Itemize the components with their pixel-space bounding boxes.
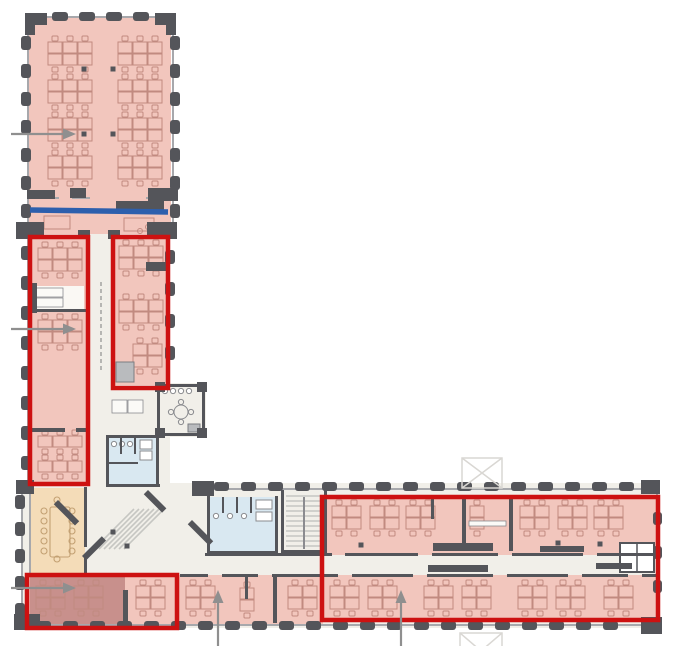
pilaster bbox=[170, 36, 180, 50]
counter-seat bbox=[170, 388, 175, 393]
pilaster bbox=[576, 621, 591, 630]
pilaster bbox=[403, 482, 418, 491]
pilaster bbox=[279, 621, 294, 630]
pilaster bbox=[565, 482, 580, 491]
bath-fixture bbox=[111, 441, 116, 446]
counter-seat bbox=[186, 388, 191, 393]
column-dot bbox=[111, 530, 116, 535]
sink bbox=[256, 500, 272, 509]
pilaster bbox=[252, 621, 267, 630]
pilaster bbox=[495, 621, 510, 630]
desk-cluster bbox=[48, 74, 92, 110]
pilaster bbox=[52, 12, 68, 21]
pilaster bbox=[306, 621, 321, 630]
pilaster bbox=[21, 148, 31, 162]
shelf bbox=[34, 298, 63, 307]
pilaster bbox=[360, 621, 375, 630]
shelf bbox=[128, 400, 143, 413]
pilaster bbox=[511, 482, 526, 491]
pilaster bbox=[376, 482, 391, 491]
pilaster bbox=[619, 482, 634, 491]
pilaster bbox=[133, 12, 149, 21]
pilaster bbox=[15, 522, 25, 536]
pilaster bbox=[21, 120, 31, 134]
pilaster bbox=[295, 482, 310, 491]
bath-fixture bbox=[213, 513, 218, 518]
column-dot bbox=[125, 544, 130, 549]
pilaster bbox=[441, 621, 456, 630]
floor-plan-svg bbox=[0, 0, 691, 646]
column-dot bbox=[82, 132, 87, 137]
desk-cluster bbox=[118, 74, 162, 110]
column-dot bbox=[82, 67, 87, 72]
bath-fixture bbox=[241, 513, 246, 518]
pilaster bbox=[214, 482, 229, 491]
x-marker bbox=[460, 633, 502, 646]
pilaster bbox=[522, 621, 537, 630]
pilaster bbox=[15, 495, 25, 509]
column-dot bbox=[556, 541, 561, 546]
pilaster bbox=[106, 12, 122, 21]
pilaster bbox=[21, 92, 31, 106]
column-dot bbox=[598, 542, 603, 547]
pilaster bbox=[430, 482, 445, 491]
desk-cluster bbox=[48, 112, 92, 148]
desk-cluster bbox=[118, 112, 162, 148]
pilaster bbox=[170, 176, 180, 190]
counter-seat bbox=[178, 388, 183, 393]
floor-plan-stage bbox=[0, 0, 691, 646]
pilaster bbox=[468, 621, 483, 630]
pilaster bbox=[538, 482, 553, 491]
pilaster bbox=[170, 64, 180, 78]
column-dot bbox=[111, 132, 116, 137]
pilaster bbox=[21, 36, 31, 50]
bath-fixture bbox=[227, 513, 232, 518]
pilaster bbox=[225, 621, 240, 630]
pilaster bbox=[268, 482, 283, 491]
pilaster bbox=[170, 92, 180, 106]
pilaster bbox=[333, 621, 348, 630]
pilaster bbox=[21, 64, 31, 78]
section-line bbox=[30, 210, 168, 212]
pilaster bbox=[592, 482, 607, 491]
desk-cluster bbox=[38, 314, 82, 350]
pilaster bbox=[603, 621, 618, 630]
shelf bbox=[469, 521, 506, 526]
sink bbox=[140, 451, 152, 460]
shelf bbox=[112, 400, 127, 413]
pilaster bbox=[170, 148, 180, 162]
desk-cluster bbox=[118, 150, 162, 186]
left-box-rooms bbox=[31, 239, 87, 483]
sink bbox=[140, 440, 152, 449]
column-dot bbox=[111, 67, 116, 72]
sink bbox=[256, 512, 272, 521]
copier bbox=[116, 362, 134, 382]
pilaster bbox=[21, 204, 31, 218]
desk-cluster bbox=[38, 242, 82, 278]
pilaster bbox=[241, 482, 256, 491]
blue-section-line bbox=[30, 210, 168, 212]
pilaster bbox=[170, 204, 180, 218]
pilaster bbox=[198, 621, 213, 630]
pilaster bbox=[79, 12, 95, 21]
pilaster bbox=[21, 176, 31, 190]
desk-cluster bbox=[118, 36, 162, 72]
pilaster bbox=[322, 482, 337, 491]
bath-fixture bbox=[127, 441, 132, 446]
shelf bbox=[34, 288, 63, 297]
column-dot bbox=[359, 543, 364, 548]
pilaster bbox=[549, 621, 564, 630]
desk-cluster bbox=[119, 294, 163, 330]
pilaster bbox=[15, 549, 25, 563]
pilaster bbox=[387, 621, 402, 630]
pilaster bbox=[414, 621, 429, 630]
pilaster bbox=[349, 482, 364, 491]
pilaster bbox=[15, 603, 25, 617]
pilaster bbox=[170, 120, 180, 134]
desk-cluster bbox=[48, 150, 92, 186]
